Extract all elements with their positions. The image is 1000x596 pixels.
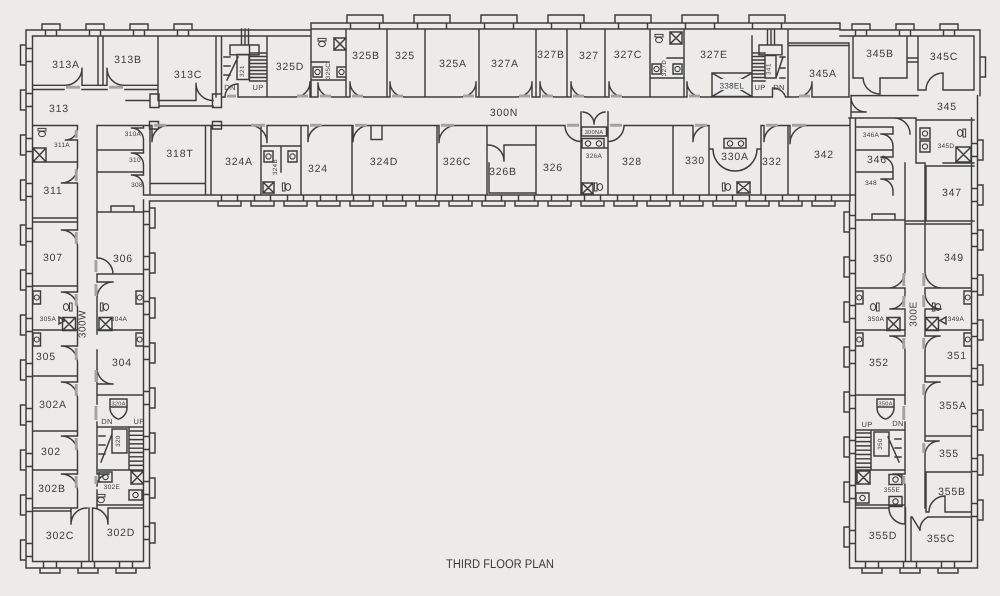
- svg-text:DN: DN: [892, 419, 903, 428]
- svg-text:320A: 320A: [111, 401, 125, 408]
- svg-text:332: 332: [762, 156, 782, 168]
- svg-text:302E: 302E: [104, 484, 121, 491]
- svg-text:324B: 324B: [272, 159, 279, 175]
- svg-text:326: 326: [543, 162, 563, 174]
- svg-text:325: 325: [395, 50, 415, 62]
- svg-text:345C: 345C: [930, 51, 958, 63]
- svg-text:345B: 345B: [866, 48, 894, 60]
- svg-text:300NA: 300NA: [585, 129, 604, 136]
- svg-text:345D: 345D: [938, 143, 955, 150]
- svg-text:UP: UP: [133, 417, 144, 426]
- svg-text:313A: 313A: [52, 59, 80, 71]
- svg-text:326A: 326A: [586, 153, 603, 160]
- svg-text:305A: 305A: [40, 316, 57, 323]
- svg-text:325A: 325A: [439, 58, 467, 70]
- svg-text:UP: UP: [861, 420, 872, 429]
- svg-text:302D: 302D: [107, 527, 135, 539]
- svg-text:324A: 324A: [225, 156, 253, 168]
- svg-text:330: 330: [685, 155, 705, 167]
- svg-text:345: 345: [937, 101, 957, 113]
- svg-text:325C: 325C: [325, 63, 332, 80]
- svg-text:355: 355: [939, 448, 959, 460]
- svg-text:313B: 313B: [114, 54, 142, 66]
- svg-text:327D: 327D: [661, 60, 668, 77]
- svg-text:300E: 300E: [909, 301, 920, 326]
- svg-text:DN: DN: [101, 417, 112, 426]
- svg-text:321: 321: [239, 65, 246, 77]
- svg-text:318T: 318T: [166, 148, 193, 160]
- svg-text:325D: 325D: [276, 61, 304, 73]
- svg-text:THIRD FLOOR PLAN: THIRD FLOOR PLAN: [446, 557, 554, 571]
- svg-text:350: 350: [877, 438, 884, 450]
- svg-text:328: 328: [622, 156, 642, 168]
- svg-text:330A: 330A: [721, 151, 749, 163]
- svg-text:313C: 313C: [174, 69, 202, 81]
- svg-text:305: 305: [36, 351, 56, 363]
- svg-text:348: 348: [865, 180, 877, 187]
- svg-text:349: 349: [944, 252, 964, 264]
- svg-text:346: 346: [867, 154, 887, 166]
- svg-text:300N: 300N: [490, 107, 518, 119]
- svg-text:DN: DN: [224, 83, 235, 92]
- svg-text:320: 320: [115, 435, 122, 447]
- svg-text:352: 352: [869, 357, 889, 369]
- svg-text:302: 302: [41, 446, 61, 458]
- svg-text:327C: 327C: [614, 49, 642, 61]
- svg-text:304A: 304A: [111, 316, 128, 323]
- svg-text:327A: 327A: [491, 58, 519, 70]
- svg-text:311A: 311A: [54, 142, 70, 149]
- svg-text:349A: 349A: [948, 316, 965, 323]
- svg-text:311: 311: [43, 185, 62, 197]
- svg-text:327: 327: [579, 50, 599, 62]
- svg-text:302C: 302C: [46, 530, 74, 542]
- svg-text:355A: 355A: [939, 400, 967, 412]
- svg-text:327B: 327B: [537, 49, 565, 61]
- svg-text:325B: 325B: [352, 50, 380, 62]
- svg-text:341: 341: [765, 63, 772, 75]
- svg-text:300W: 300W: [78, 310, 89, 338]
- svg-text:346A: 346A: [863, 132, 880, 139]
- svg-text:326C: 326C: [443, 156, 471, 168]
- svg-text:350A: 350A: [868, 316, 885, 323]
- svg-text:313: 313: [49, 103, 69, 115]
- svg-text:351: 351: [947, 350, 967, 362]
- svg-text:355C: 355C: [927, 533, 955, 545]
- svg-text:302A: 302A: [39, 399, 67, 411]
- svg-text:347: 347: [942, 187, 962, 199]
- svg-text:338EL: 338EL: [720, 82, 745, 91]
- svg-text:304: 304: [112, 357, 132, 369]
- svg-text:355B: 355B: [938, 486, 966, 498]
- svg-text:355D: 355D: [869, 530, 897, 542]
- svg-text:308: 308: [131, 182, 143, 189]
- svg-text:345A: 345A: [809, 68, 837, 80]
- svg-text:302B: 302B: [38, 483, 66, 495]
- svg-text:UP: UP: [754, 83, 765, 92]
- svg-text:UP: UP: [252, 83, 263, 92]
- svg-text:326B: 326B: [489, 166, 517, 178]
- svg-text:342: 342: [814, 149, 834, 161]
- svg-text:350: 350: [873, 253, 893, 265]
- svg-text:355E: 355E: [884, 487, 901, 494]
- svg-text:324D: 324D: [370, 156, 398, 168]
- svg-text:306: 306: [113, 253, 133, 265]
- svg-text:324: 324: [308, 163, 328, 175]
- svg-text:310: 310: [129, 157, 141, 164]
- svg-text:327E: 327E: [700, 49, 728, 61]
- svg-text:310A: 310A: [125, 131, 142, 138]
- svg-text:DN: DN: [773, 83, 784, 92]
- svg-text:350A: 350A: [878, 401, 892, 408]
- svg-text:307: 307: [43, 252, 63, 264]
